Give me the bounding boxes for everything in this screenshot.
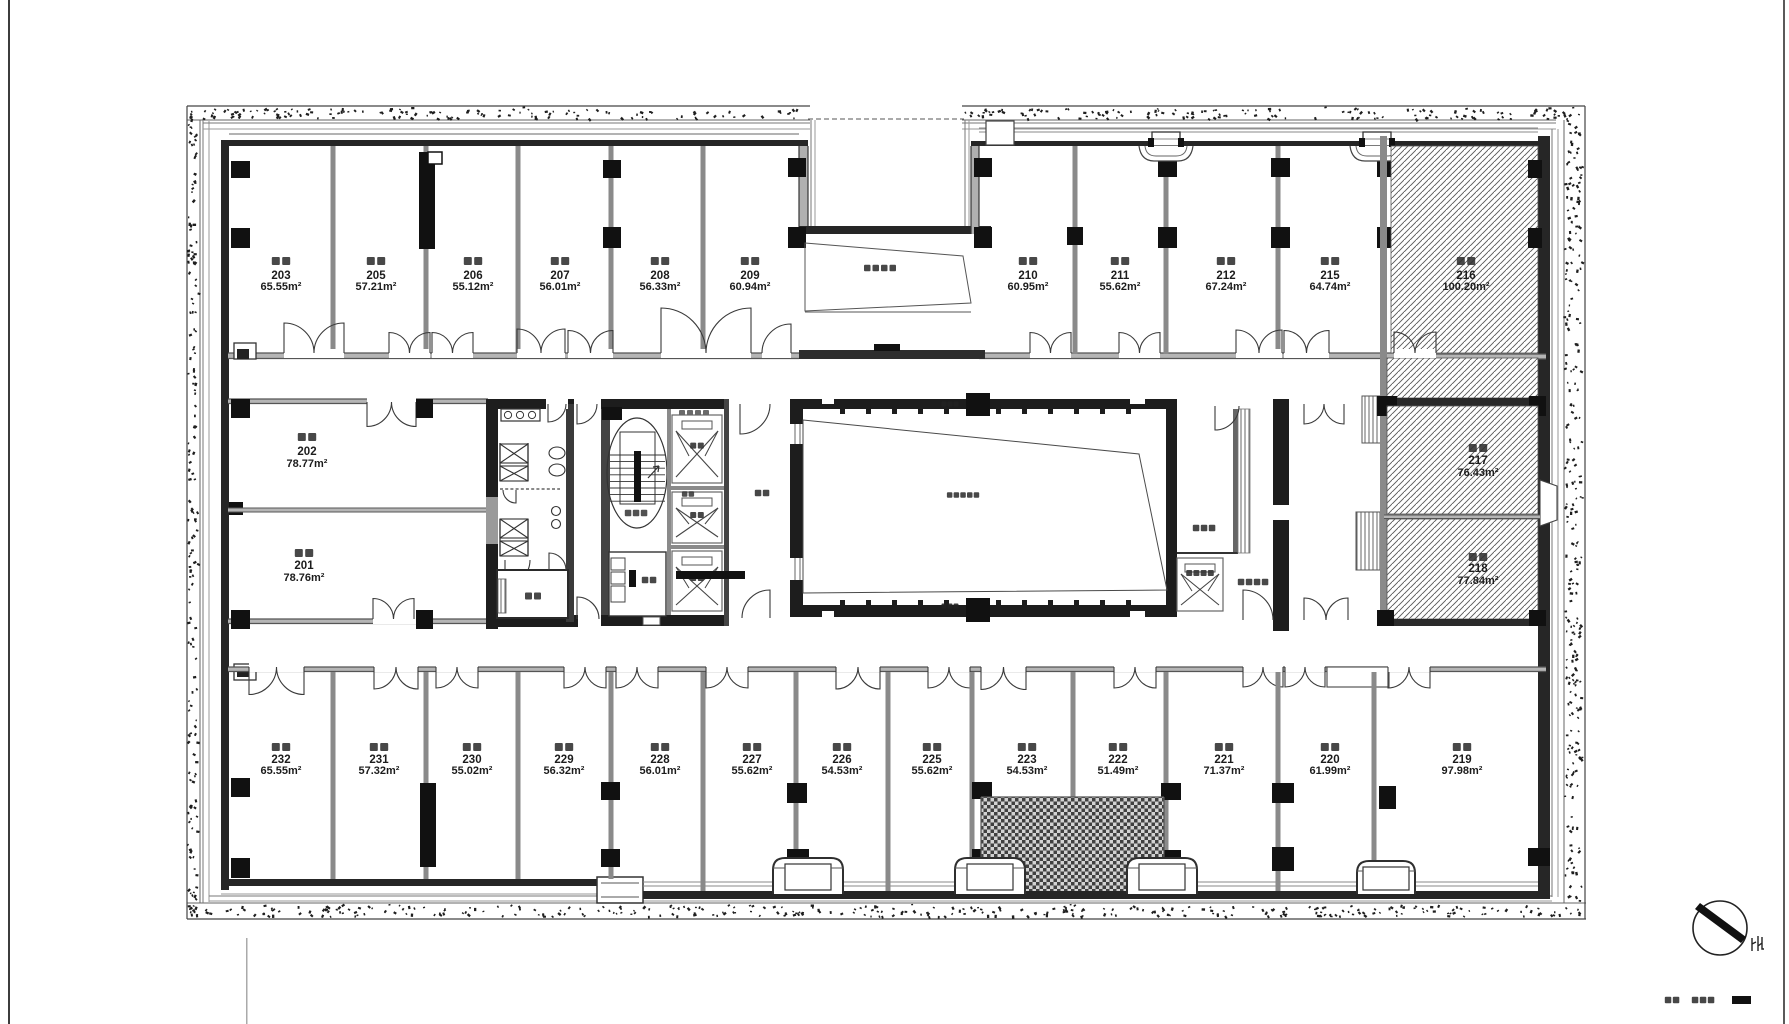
svg-text:51.49m²: 51.49m²: [1098, 765, 1139, 777]
svg-text:57.32m²: 57.32m²: [359, 765, 400, 777]
svg-text:78.76m²: 78.76m²: [284, 572, 325, 584]
svg-text:217: 217: [1468, 455, 1487, 467]
svg-text:55.12m²: 55.12m²: [453, 281, 494, 293]
svg-text:55.62m²: 55.62m²: [912, 765, 953, 777]
svg-text:55.62m²: 55.62m²: [1100, 281, 1141, 293]
svg-text:78.77m²: 78.77m²: [287, 458, 328, 470]
svg-text:100.20m²: 100.20m²: [1442, 281, 1489, 293]
svg-text:71.37m²: 71.37m²: [1204, 765, 1245, 777]
svg-text:97.98m²: 97.98m²: [1442, 765, 1483, 777]
svg-text:57.21m²: 57.21m²: [356, 281, 397, 293]
svg-text:65.55m²: 65.55m²: [261, 765, 302, 777]
svg-text:54.53m²: 54.53m²: [822, 765, 863, 777]
svg-text:218: 218: [1468, 563, 1488, 575]
svg-text:56.01m²: 56.01m²: [640, 765, 681, 777]
svg-text:65.55m²: 65.55m²: [261, 281, 302, 293]
svg-text:54.53m²: 54.53m²: [1007, 765, 1048, 777]
svg-text:67.24m²: 67.24m²: [1206, 281, 1247, 293]
svg-text:60.94m²: 60.94m²: [730, 281, 771, 293]
svg-text:56.33m²: 56.33m²: [640, 281, 681, 293]
svg-text:60.95m²: 60.95m²: [1008, 281, 1049, 293]
svg-text:77.84m²: 77.84m²: [1458, 575, 1499, 587]
svg-text:202: 202: [297, 446, 316, 458]
svg-text:201: 201: [294, 560, 314, 572]
svg-text:56.32m²: 56.32m²: [544, 765, 585, 777]
svg-text:55.62m²: 55.62m²: [732, 765, 773, 777]
svg-text:64.74m²: 64.74m²: [1310, 281, 1351, 293]
svg-text:76.43m²: 76.43m²: [1458, 467, 1499, 479]
svg-text:55.02m²: 55.02m²: [452, 765, 493, 777]
svg-text:56.01m²: 56.01m²: [540, 281, 581, 293]
svg-text:61.99m²: 61.99m²: [1310, 765, 1351, 777]
